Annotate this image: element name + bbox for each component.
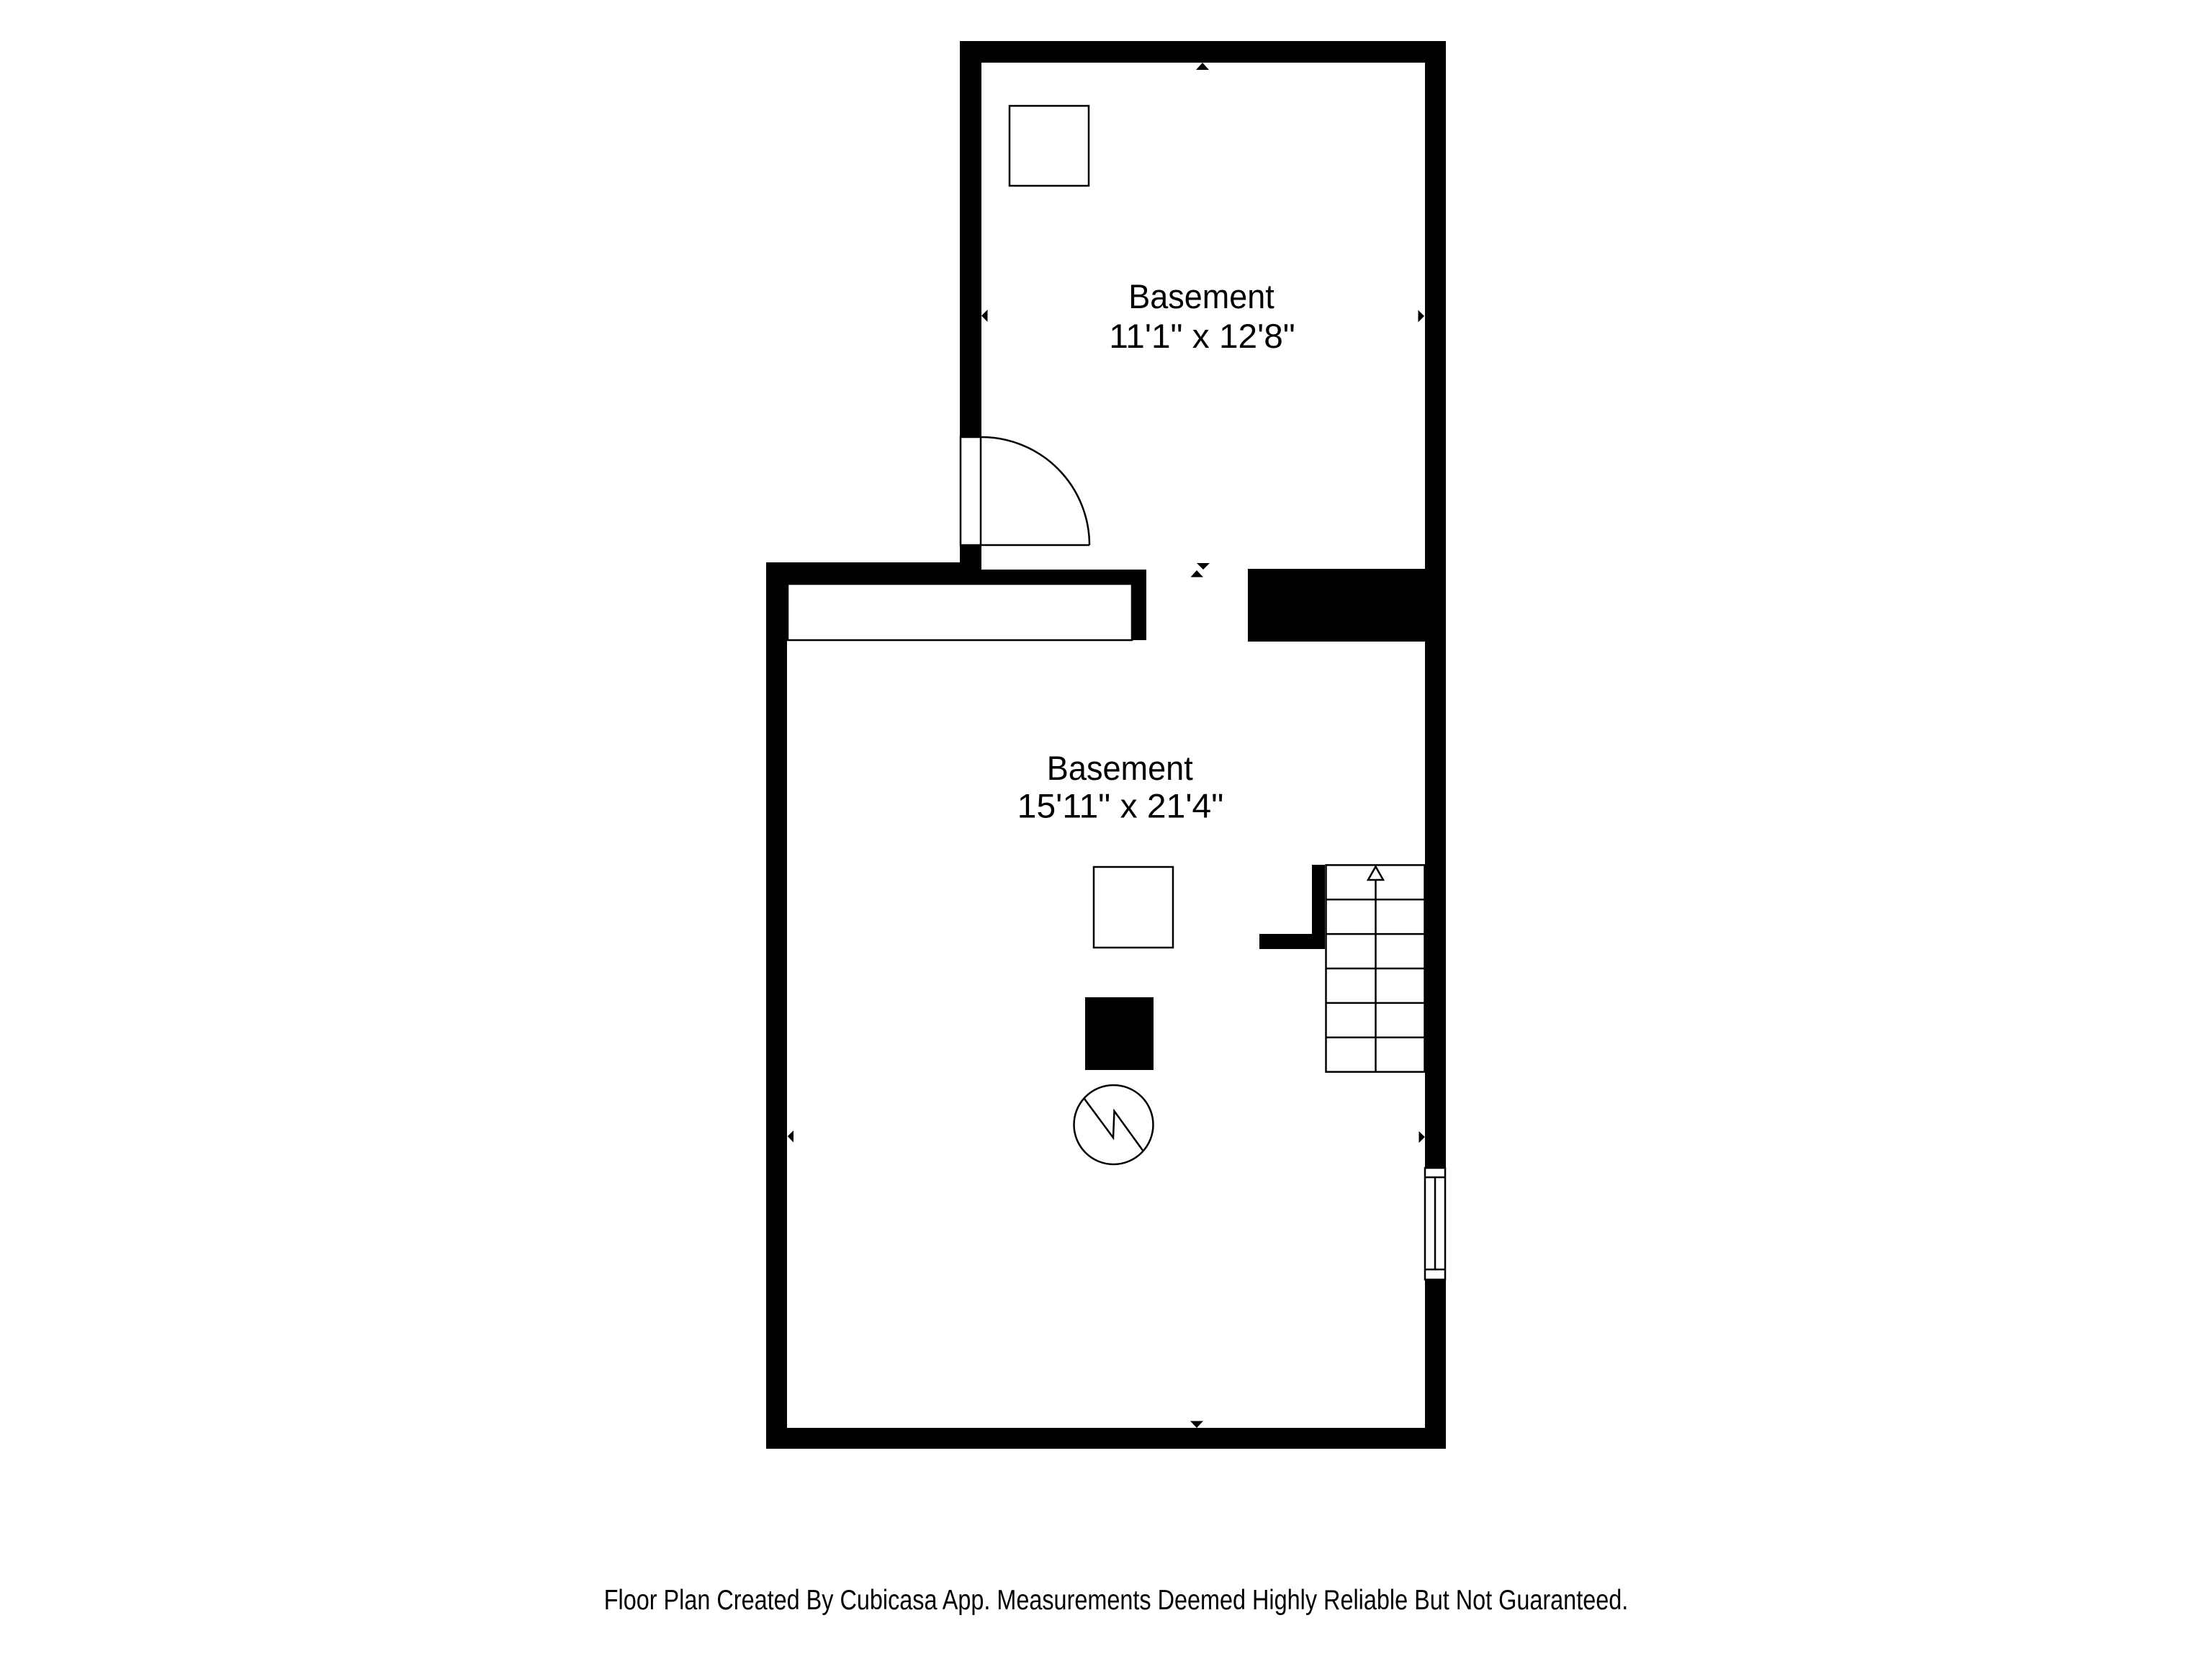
svg-text:Floor Plan Created By Cubicasa: Floor Plan Created By Cubicasa App. Meas…: [604, 1585, 1629, 1616]
svg-text:15'11" x 21'4": 15'11" x 21'4": [1017, 787, 1224, 825]
svg-text:Basement: Basement: [1128, 277, 1274, 315]
svg-text:11'1" x 12'8": 11'1" x 12'8": [1109, 317, 1295, 355]
svg-text:Basement: Basement: [1047, 749, 1193, 787]
